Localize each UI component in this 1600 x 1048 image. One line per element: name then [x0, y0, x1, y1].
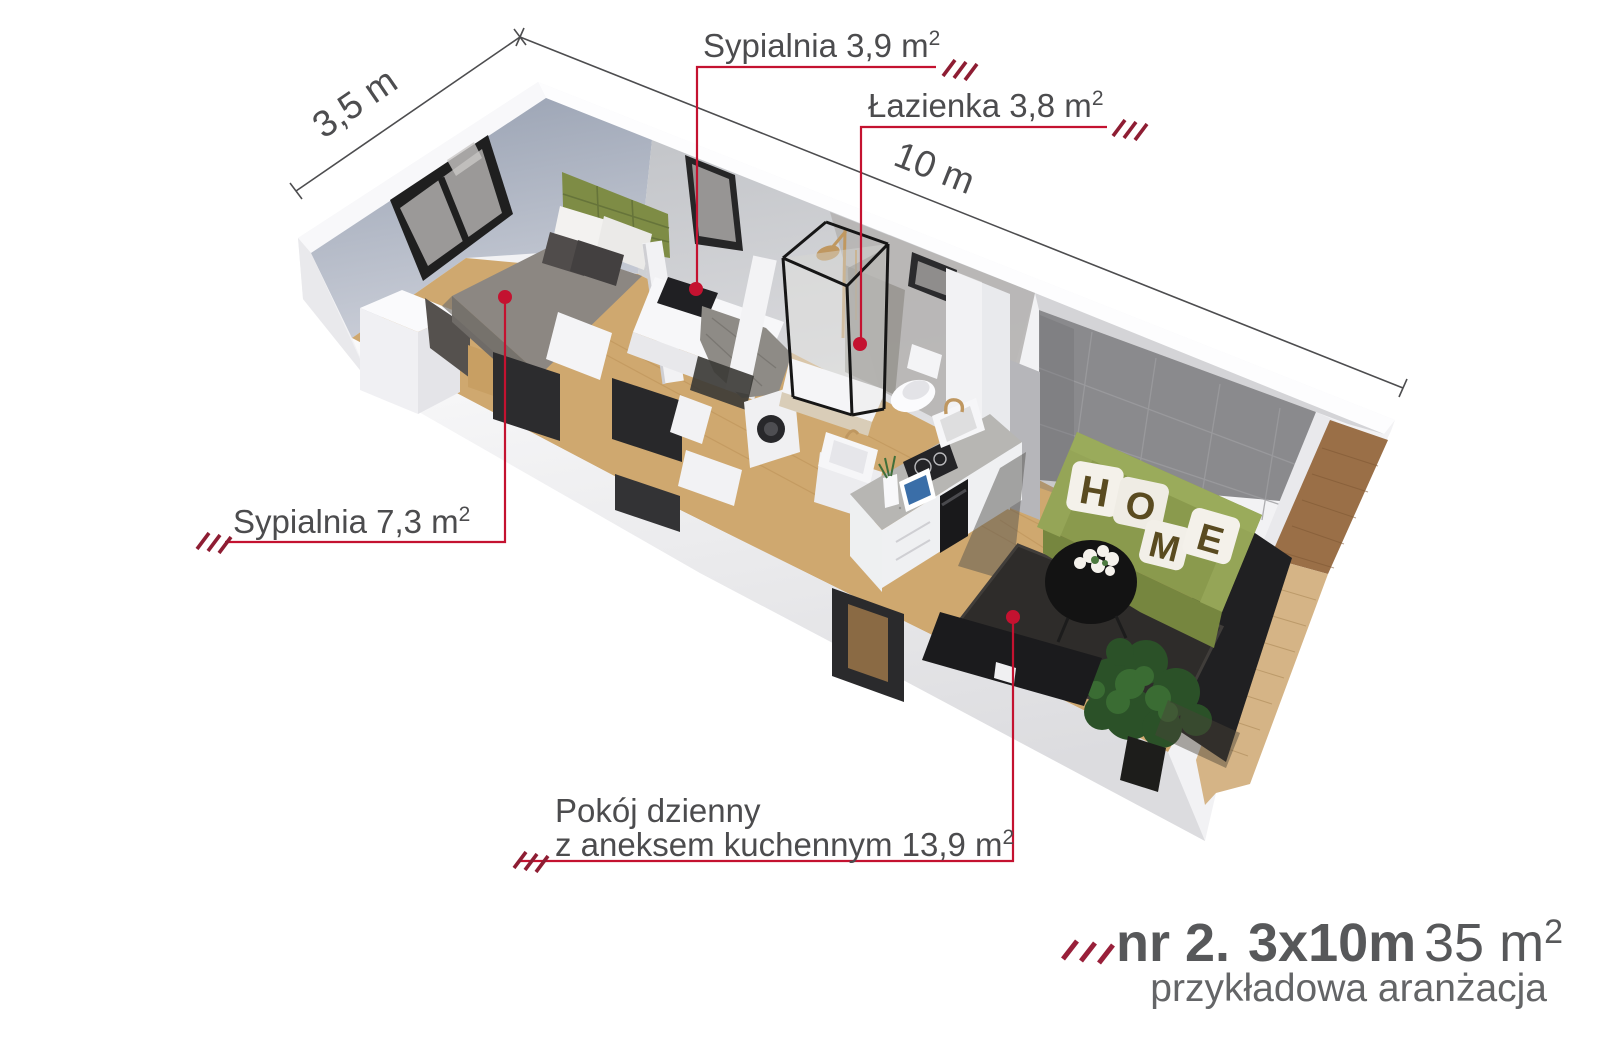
- svg-text:przykładowa aranżacja: przykładowa aranżacja: [1150, 967, 1547, 1010]
- svg-text:Sypialnia 3,9 m2: Sypialnia 3,9 m2: [703, 27, 940, 64]
- svg-text:35 m2: 35 m2: [1424, 913, 1563, 973]
- svg-text:3x10m: 3x10m: [1248, 913, 1416, 973]
- svg-text:z aneksem kuchennym 13,9 m2: z aneksem kuchennym 13,9 m2: [555, 826, 1014, 863]
- svg-text:Łazienka 3,8 m2: Łazienka 3,8 m2: [868, 87, 1104, 124]
- svg-text:Sypialnia 7,3 m2: Sypialnia 7,3 m2: [233, 503, 470, 540]
- svg-text:Pokój dzienny: Pokój dzienny: [555, 792, 761, 829]
- svg-text:nr 2.: nr 2.: [1116, 913, 1230, 973]
